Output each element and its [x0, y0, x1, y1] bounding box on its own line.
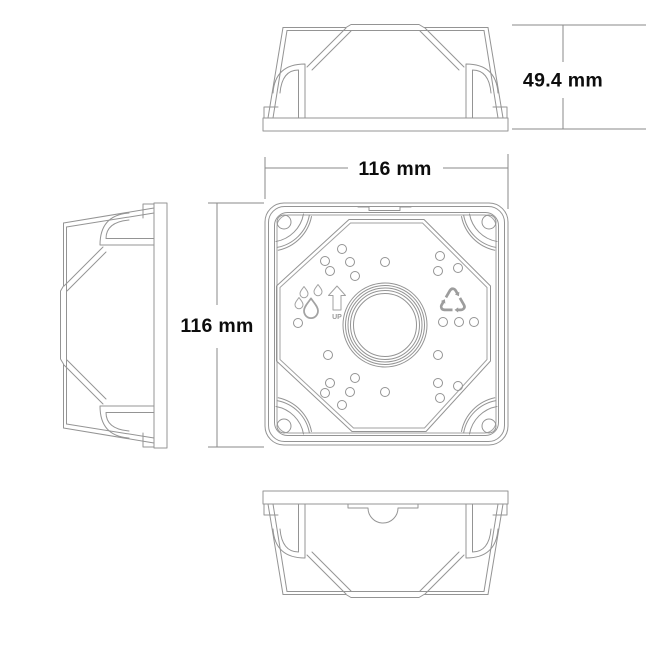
water-drops-icon [295, 285, 322, 319]
mounting-holes [294, 245, 479, 410]
dimension-depth-label: 116 mm [180, 315, 253, 337]
up-label: UP [332, 314, 342, 321]
central-cable-hole [343, 283, 427, 367]
cable-entry-notch [348, 504, 418, 523]
technical-drawing-sheet: 49.4 mm [0, 0, 650, 650]
top-latch-tab [358, 207, 411, 211]
dimension-height: 49.4 mm [512, 25, 646, 129]
side-profile-view [61, 203, 168, 448]
dimension-height-label: 49.4 mm [523, 70, 603, 92]
bottom-profile-view [263, 491, 508, 598]
up-arrow-icon: UP [329, 286, 346, 321]
dimension-width-label: 116 mm [358, 158, 431, 180]
dimension-width: 116 mm [265, 154, 508, 209]
top-profile-view [263, 25, 508, 132]
face-outline [265, 203, 508, 445]
front-face-view: UP ♺ [265, 203, 508, 445]
corner-brackets [276, 214, 497, 434]
junction-box-orthographic-views: 49.4 mm [0, 0, 650, 650]
dimension-depth: 116 mm [180, 203, 264, 447]
octagon-rib [277, 220, 491, 432]
recycle-icon: ♺ [437, 282, 468, 322]
